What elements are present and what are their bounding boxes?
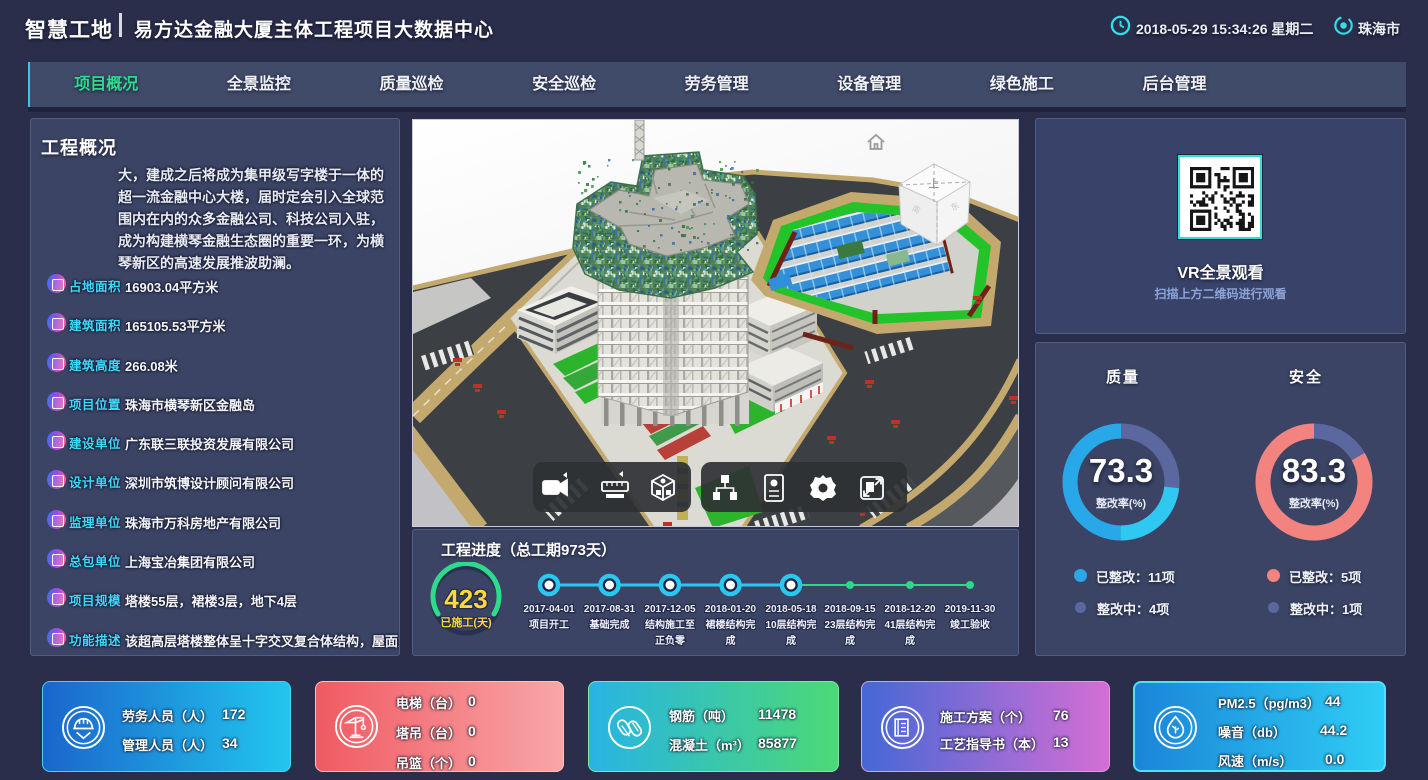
svg-text:2018-12-20: 2018-12-20 [884, 604, 936, 615]
svg-text:竣工验收: 竣工验收 [950, 618, 990, 631]
svg-text:成: 成 [786, 634, 796, 647]
svg-text:10层结构完: 10层结构完 [765, 618, 816, 631]
svg-text:2019-11-30: 2019-11-30 [945, 604, 996, 615]
svg-text:2017-04-01: 2017-04-01 [523, 604, 575, 615]
svg-text:2018-01-20: 2018-01-20 [705, 604, 757, 615]
svg-text:上: 上 [929, 177, 940, 190]
svg-text:2017-08-31: 2017-08-31 [584, 604, 636, 615]
svg-text:2018-09-15: 2018-09-15 [824, 604, 876, 615]
svg-text:成: 成 [726, 634, 736, 647]
svg-text:423: 423 [444, 584, 487, 614]
svg-text:成: 成 [845, 634, 855, 647]
svg-text:41层结构完: 41层结构完 [884, 618, 935, 631]
svg-text:项目开工: 项目开工 [529, 619, 569, 631]
svg-text:23层结构完: 23层结构完 [824, 618, 875, 631]
svg-text:2018-05-18: 2018-05-18 [765, 604, 817, 615]
svg-text:裙楼结构完: 裙楼结构完 [706, 618, 756, 631]
svg-text:已施工(天): 已施工(天) [440, 615, 492, 629]
svg-text:成: 成 [905, 634, 915, 647]
svg-text:2017-12-05: 2017-12-05 [644, 604, 696, 615]
svg-text:结构施工至: 结构施工至 [645, 618, 695, 631]
svg-text:基础完成: 基础完成 [589, 618, 630, 631]
svg-text:正负零: 正负零 [655, 634, 686, 647]
